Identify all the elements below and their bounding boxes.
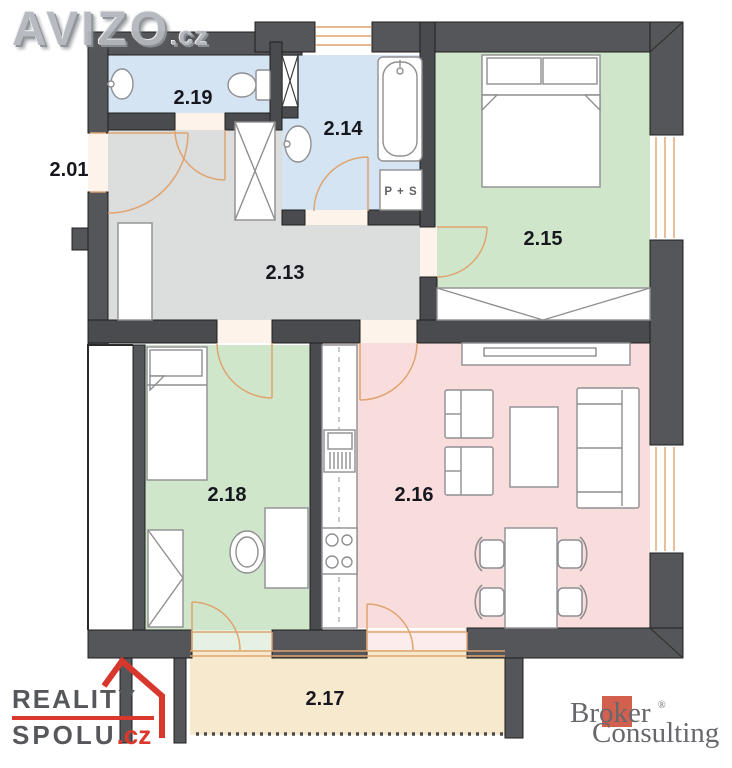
hall-closet: [235, 122, 275, 220]
label-hallway: 2.13: [266, 262, 305, 284]
label-bathroom: 2.14: [324, 118, 364, 140]
avizo-watermark: AVIZO.cz: [12, 2, 209, 57]
window-bedroom: [650, 135, 683, 240]
avizo-tld: .cz: [170, 21, 209, 51]
neighbor-outline: [88, 345, 133, 630]
desk-chair: [230, 531, 264, 573]
floorplan-drawing: 2.01 2.19 2.14 2.15 2.13 2.18 2.16 2.17 …: [0, 0, 732, 768]
hall-cabinet: [118, 223, 152, 320]
broker-word2: Consulting: [592, 719, 719, 748]
toilet-icon: [228, 70, 270, 100]
room-balcony: [190, 650, 505, 735]
avizo-brand: AVIZO: [12, 3, 170, 56]
floorplan-page: 2.01 2.19 2.14 2.15 2.13 2.18 2.16 2.17 …: [0, 0, 732, 768]
sofa: [577, 388, 639, 508]
opening-kids-door: [217, 320, 272, 343]
desk: [265, 508, 308, 588]
label-bedroom: 2.15: [524, 228, 563, 250]
opening-wc-door: [175, 113, 225, 130]
label-balcony: 2.17: [306, 688, 345, 710]
shaft: [282, 55, 298, 107]
kitchen-sink: [324, 430, 355, 472]
dining-table: [505, 528, 557, 628]
tv-bench: [462, 343, 630, 365]
label-entrance: 2.01: [50, 159, 89, 181]
armchair-1: [445, 390, 493, 438]
opening-bedroom-door: [420, 227, 437, 277]
broker-consulting-logo: Broker ® Consulting: [566, 690, 728, 752]
single-bed: [147, 347, 207, 480]
label-kids-room: 2.18: [208, 484, 247, 506]
reality-spolu-house-icon: [98, 656, 168, 747]
label-living-room: 2.16: [395, 484, 434, 506]
bathtub-icon: [378, 57, 422, 161]
label-washer-dryer: P + S: [384, 186, 417, 198]
stove-icon: [322, 528, 357, 574]
broker-registered-mark: ®: [658, 701, 666, 711]
threshold-kids-balcony: [192, 630, 272, 650]
opening-entrance: [88, 133, 108, 192]
bedroom-wardrobe: [437, 288, 650, 320]
double-bed: [482, 55, 600, 187]
opening-bath-door: [305, 210, 368, 225]
coffee-table: [510, 407, 558, 487]
window-living: [650, 445, 683, 553]
armchair-2: [445, 447, 493, 495]
reality-spolu-logo: REALITY SPOLU.cz: [12, 686, 154, 750]
kitchen-counter: [322, 345, 357, 628]
label-wc: 2.19: [174, 87, 213, 109]
kids-wardrobe: [148, 530, 183, 627]
opening-living-door: [360, 320, 417, 343]
threshold-living-balcony: [367, 630, 467, 650]
bath-sink-icon: [284, 126, 311, 162]
